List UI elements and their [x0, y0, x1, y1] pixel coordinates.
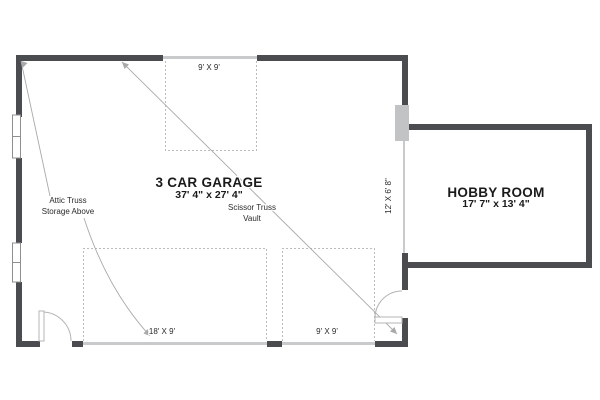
garage-dimensions: 37' 4" x 27' 4" — [175, 189, 243, 201]
garage-right-wall-middle — [402, 253, 408, 290]
hobby-top-wall — [402, 124, 592, 130]
garage-bottom-wall-pier1 — [72, 341, 83, 347]
garage-right-wall-lower — [402, 318, 408, 347]
scissor-vault-line — [122, 62, 397, 334]
swing-doors — [39, 291, 402, 341]
garage-bottom-wall-corner — [16, 341, 40, 347]
top-garage-door-panel — [163, 56, 257, 59]
attic-leader-line-upper — [21, 61, 50, 196]
garage-left-wall-middle — [16, 158, 22, 243]
garage-top-wall-left — [16, 55, 163, 61]
entry-door-swing-arc — [42, 312, 71, 341]
attic-truss-note-line2: Storage Above — [42, 207, 95, 216]
main-door-size-label: 18' X 9' — [149, 327, 176, 336]
floor-plan-page: 3 CAR GARAGE 37' 4" x 27' 4" HOBBY ROOM … — [0, 0, 600, 400]
garage-bottom-wall-pier2 — [267, 341, 282, 347]
right-door-size-label: 9' X 9' — [316, 327, 338, 336]
hobby-room-dimensions: 17' 7" x 13' 4" — [462, 198, 530, 210]
top-door-dashed-outline — [166, 61, 257, 151]
passage-opening-line — [403, 141, 405, 253]
side-door-leaf — [375, 317, 402, 323]
main-garage-door-panel — [83, 342, 267, 345]
attic-leader-line-lower — [84, 218, 150, 336]
attic-truss-note-line1: Attic Truss — [49, 196, 86, 205]
side-door-swing-arc — [375, 291, 402, 318]
scissor-truss-note-line2: Vault — [243, 214, 261, 223]
hobby-bottom-wall — [402, 262, 592, 268]
floor-plan: 3 CAR GARAGE 37' 4" x 27' 4" HOBBY ROOM … — [0, 0, 600, 400]
garage-right-wall-upper — [402, 55, 408, 107]
right-garage-door-panel — [282, 342, 375, 345]
garage-left-wall-lower — [16, 282, 22, 347]
scissor-truss-note-line1: Scissor Truss — [228, 203, 276, 212]
labels: 3 CAR GARAGE 37' 4" x 27' 4" HOBBY ROOM … — [42, 63, 545, 336]
entry-door-leaf — [39, 311, 44, 341]
wall-post-block — [395, 105, 409, 141]
garage-title: 3 CAR GARAGE — [155, 175, 262, 190]
passage-size-label: 12' X 6' 8" — [384, 178, 393, 214]
hobby-right-wall — [586, 124, 592, 268]
door-panels — [83, 56, 405, 345]
garage-left-wall-upper — [16, 55, 22, 117]
overhead-track-outlines — [84, 61, 375, 341]
garage-top-wall-right — [257, 55, 408, 61]
top-door-size-label: 9' X 9' — [198, 63, 220, 72]
